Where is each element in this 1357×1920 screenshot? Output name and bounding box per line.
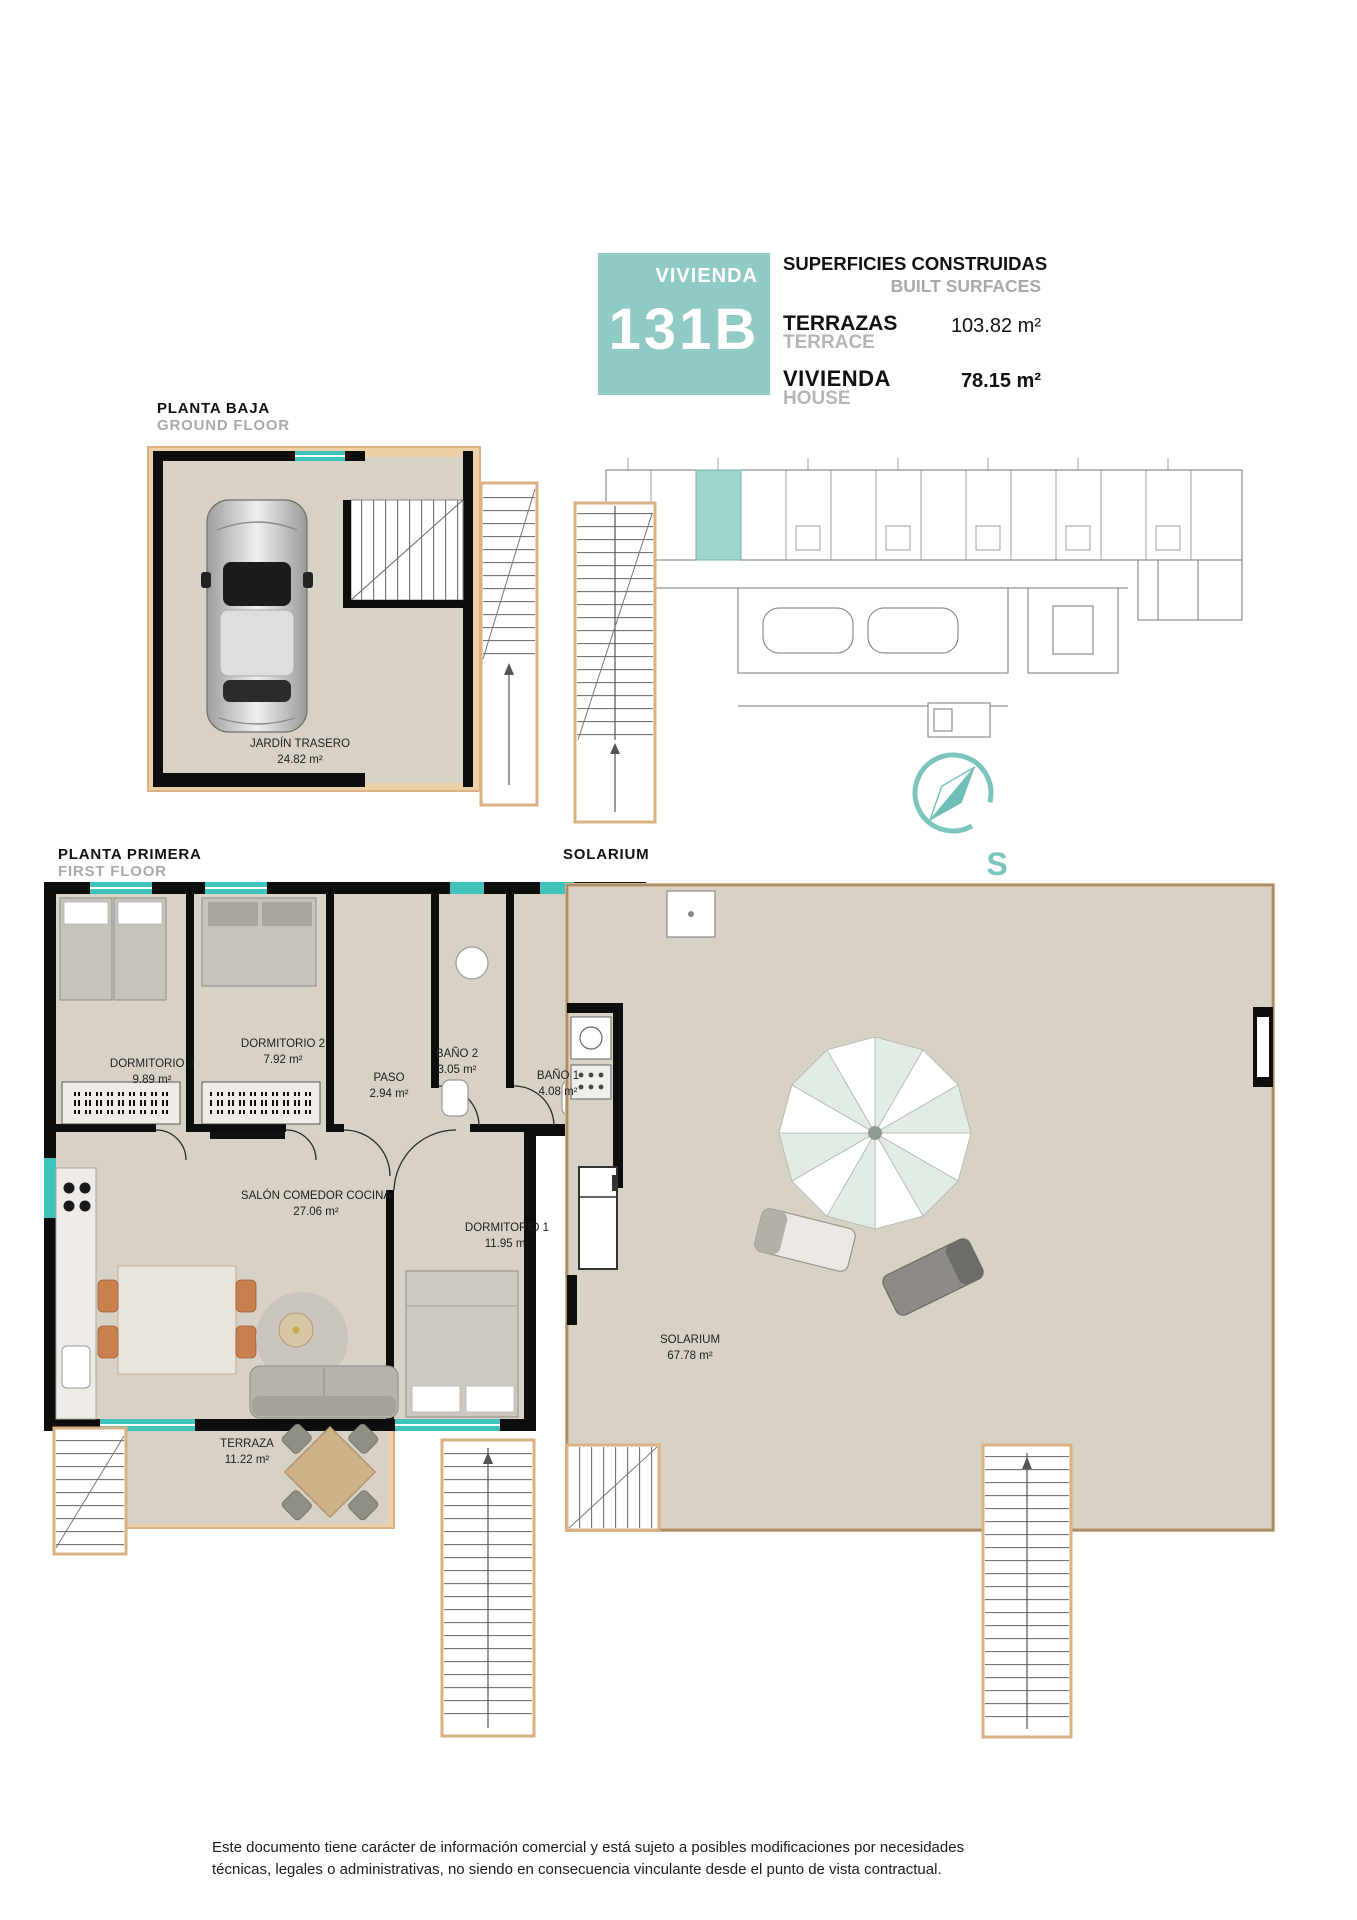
ground-floor-title: PLANTA BAJA GROUND FLOOR bbox=[157, 400, 290, 435]
bed-dormitorio-2 bbox=[202, 898, 316, 986]
house-area-value: 78.15 m² bbox=[961, 369, 1041, 393]
right-niche bbox=[1253, 1007, 1273, 1087]
terrace-label-en: TERRACE bbox=[783, 334, 897, 352]
sofa bbox=[250, 1366, 398, 1418]
room-label-solarium: SOLARIUM 67.78 m² bbox=[660, 1332, 720, 1364]
badge-label: VIVIENDA bbox=[656, 265, 758, 288]
surfaces-table: SUPERFICIES CONSTRUIDAS BUILT SURFACES T… bbox=[783, 253, 1041, 408]
disclaimer-line-1: Este documento tiene carácter de informa… bbox=[212, 1837, 1162, 1859]
room-label-bano-1: BAÑO 1 4.08 m² bbox=[537, 1068, 579, 1100]
exterior-stair-shaft bbox=[481, 483, 537, 805]
stair-tower bbox=[572, 500, 658, 825]
unit-badge: VIVIENDA 131B bbox=[598, 253, 770, 395]
disclaimer-line-2: técnicas, legales o administrativas, no … bbox=[212, 1859, 1162, 1881]
parapet-stub bbox=[567, 1275, 577, 1325]
car-top-view bbox=[201, 500, 313, 732]
interior-stairs bbox=[343, 500, 463, 608]
room-label-jardin-trasero: JARDÍN TRASERO 24.82 m² bbox=[250, 736, 350, 768]
room-label-paso: PASO 2.94 m² bbox=[370, 1070, 409, 1102]
solarium-stairs-right bbox=[983, 1445, 1071, 1737]
surface-row-house: VIVIENDA HOUSE 78.15 m² bbox=[783, 369, 1041, 408]
house-label-es: VIVIENDA bbox=[783, 369, 891, 390]
room-label-dormitorio-3: DORMITORIO 3 9.89 m² bbox=[110, 1056, 194, 1088]
exterior-stairs-right bbox=[442, 1440, 534, 1736]
bed-dormitorio-1 bbox=[406, 1271, 518, 1417]
site-plan-highlighted-unit bbox=[696, 470, 741, 560]
shower-tray bbox=[667, 891, 715, 937]
ground-floor-title-es: PLANTA BAJA bbox=[157, 400, 290, 417]
compass-needle bbox=[920, 759, 985, 829]
terrace-area-value: 103.82 m² bbox=[951, 314, 1041, 338]
ground-floor-plan bbox=[145, 445, 545, 865]
floorplan-sheet: VIVIENDA 131B SUPERFICIES CONSTRUIDAS BU… bbox=[0, 0, 1357, 1920]
dining-set bbox=[98, 1266, 256, 1374]
solarium-plan bbox=[555, 845, 1285, 1745]
surfaces-subtitle: BUILT SURFACES bbox=[783, 276, 1041, 297]
surface-row-terrace: TERRAZAS TERRACE 103.82 m² bbox=[783, 314, 1041, 352]
solarium-stairs-left bbox=[567, 1445, 659, 1530]
tv-unit bbox=[210, 1132, 285, 1139]
room-label-salon: SALÓN COMEDOR COCINA 27.06 m² bbox=[241, 1188, 391, 1220]
fridge-icon bbox=[579, 1167, 617, 1269]
surfaces-title: SUPERFICIES CONSTRUIDAS bbox=[783, 253, 1041, 275]
site-plan bbox=[598, 448, 1258, 758]
legal-disclaimer: Este documento tiene carácter de informa… bbox=[212, 1837, 1162, 1881]
kitchen-counter bbox=[56, 1168, 96, 1419]
terrace-label-es: TERRAZAS bbox=[783, 314, 897, 334]
room-label-bano-2: BAÑO 2 3.05 m² bbox=[436, 1046, 478, 1078]
badge-unit-number: 131B bbox=[609, 296, 760, 363]
ground-floor-title-en: GROUND FLOOR bbox=[157, 417, 290, 434]
room-label-dormitorio-1: DORMITORIO 1 11.95 m² bbox=[465, 1220, 549, 1252]
house-label-en: HOUSE bbox=[783, 390, 891, 408]
room-label-terraza: TERRAZA 11.22 m² bbox=[220, 1436, 274, 1468]
terrace-stairs-left bbox=[54, 1428, 126, 1554]
room-label-dormitorio-2: DORMITORIO 2 7.92 m² bbox=[241, 1036, 325, 1068]
